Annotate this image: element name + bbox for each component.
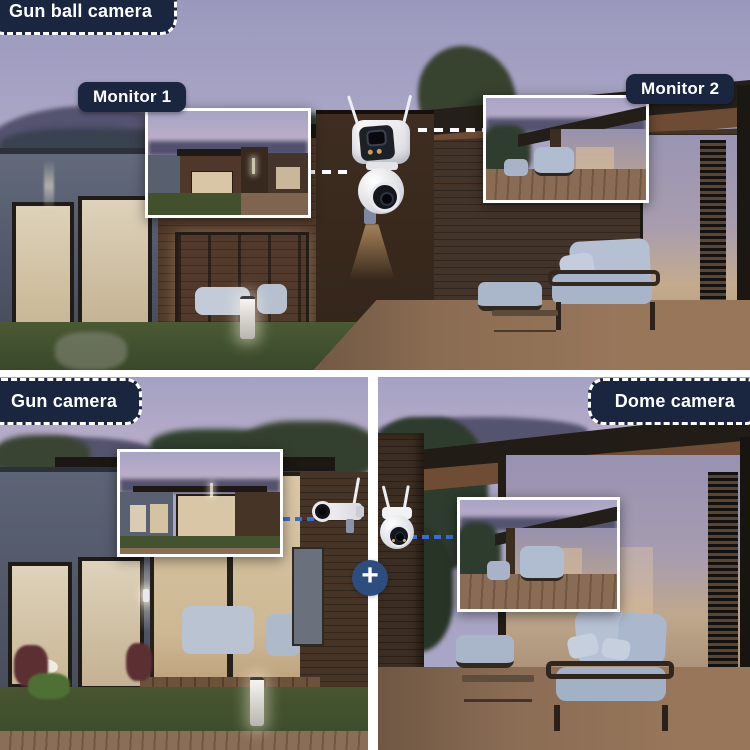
inset-ottoman bbox=[504, 159, 528, 175]
camera-led bbox=[368, 149, 373, 154]
armchair-silhouette bbox=[257, 284, 287, 314]
lounge-chair bbox=[546, 609, 686, 733]
plus-icon: + bbox=[352, 560, 388, 596]
tag-monitor1: Monitor 1 bbox=[78, 82, 186, 112]
shrub-red bbox=[126, 643, 152, 681]
dome-ptz-camera-icon bbox=[378, 485, 420, 557]
shrub-green bbox=[28, 673, 70, 699]
tag-gun-camera: Gun camera bbox=[0, 378, 142, 425]
tag-dome-camera: Dome camera bbox=[588, 378, 750, 425]
camera-led bbox=[377, 149, 382, 154]
gun-camera-view bbox=[117, 449, 283, 557]
window-lit bbox=[78, 196, 152, 332]
tag-monitor2: Monitor 2 bbox=[626, 74, 734, 104]
ottoman bbox=[456, 635, 514, 668]
chair-leg bbox=[650, 302, 655, 330]
product-image: Gun ball camera Monitor 1 Monitor 2 bbox=[0, 0, 750, 750]
deck-strip bbox=[0, 731, 368, 750]
inset-sconce-glow bbox=[252, 158, 255, 174]
camera-tail bbox=[356, 506, 364, 517]
gun-bullet-camera-icon bbox=[312, 477, 366, 535]
bollard-light bbox=[240, 296, 255, 339]
inset-sconce-glow bbox=[210, 483, 213, 497]
side-door bbox=[292, 547, 324, 646]
inset-deck bbox=[236, 193, 308, 215]
dome-camera-view bbox=[457, 497, 620, 612]
chair-leg bbox=[554, 705, 560, 731]
dome-lens bbox=[380, 192, 394, 206]
chair-pillow bbox=[601, 637, 632, 661]
inset-lawn bbox=[148, 193, 241, 215]
camera-lens bbox=[366, 129, 387, 147]
inset-ottoman bbox=[487, 561, 511, 580]
connector-monitor2 bbox=[418, 128, 484, 132]
chair-frame bbox=[546, 661, 674, 679]
dome-face bbox=[388, 525, 410, 547]
wall-sconce bbox=[143, 589, 149, 602]
monitor1-view bbox=[145, 108, 311, 218]
camera-led bbox=[392, 539, 395, 542]
gun-camera-scene-panel: Gun camera bbox=[0, 377, 368, 750]
sofa-silhouette bbox=[182, 606, 254, 654]
inset-gray-building bbox=[148, 155, 180, 195]
coffee-table bbox=[492, 310, 558, 316]
dome-face bbox=[370, 182, 400, 212]
chair-leg bbox=[662, 705, 668, 731]
inset-window-lit bbox=[150, 504, 168, 533]
chair-leg bbox=[556, 302, 561, 330]
inset-window-lit bbox=[130, 505, 146, 532]
camera-mount bbox=[346, 519, 354, 533]
dome-camera-scene-panel: Dome camera bbox=[378, 377, 750, 750]
house-edge bbox=[740, 437, 750, 687]
chair-frame bbox=[548, 270, 660, 286]
inset-chair-cushions bbox=[520, 546, 564, 582]
monitor2-view bbox=[483, 95, 649, 203]
plus-symbol: + bbox=[352, 558, 388, 594]
camera-lens bbox=[312, 501, 333, 522]
lounge-chair bbox=[552, 240, 672, 336]
tag-gun-ball-camera: Gun ball camera bbox=[0, 0, 177, 35]
dual-lens-gun-ball-camera-icon bbox=[346, 94, 422, 216]
dual-camera-scene-panel: Gun ball camera Monitor 1 Monitor 2 bbox=[0, 0, 750, 370]
bollard-light bbox=[250, 677, 264, 726]
slat-screen bbox=[708, 472, 738, 667]
lens-core bbox=[319, 508, 326, 515]
ottoman bbox=[478, 282, 542, 311]
wall-sconce-beam bbox=[44, 160, 54, 212]
inset-deck-strip bbox=[120, 548, 280, 554]
inset-wood-wall bbox=[235, 492, 280, 542]
window-lit bbox=[12, 202, 74, 328]
coffee-table bbox=[462, 675, 534, 682]
inset-chair-cushions bbox=[534, 147, 574, 177]
stone-path bbox=[55, 332, 127, 370]
inset-right-window bbox=[276, 167, 300, 189]
camera-face bbox=[359, 125, 396, 162]
camera-led bbox=[403, 539, 406, 542]
